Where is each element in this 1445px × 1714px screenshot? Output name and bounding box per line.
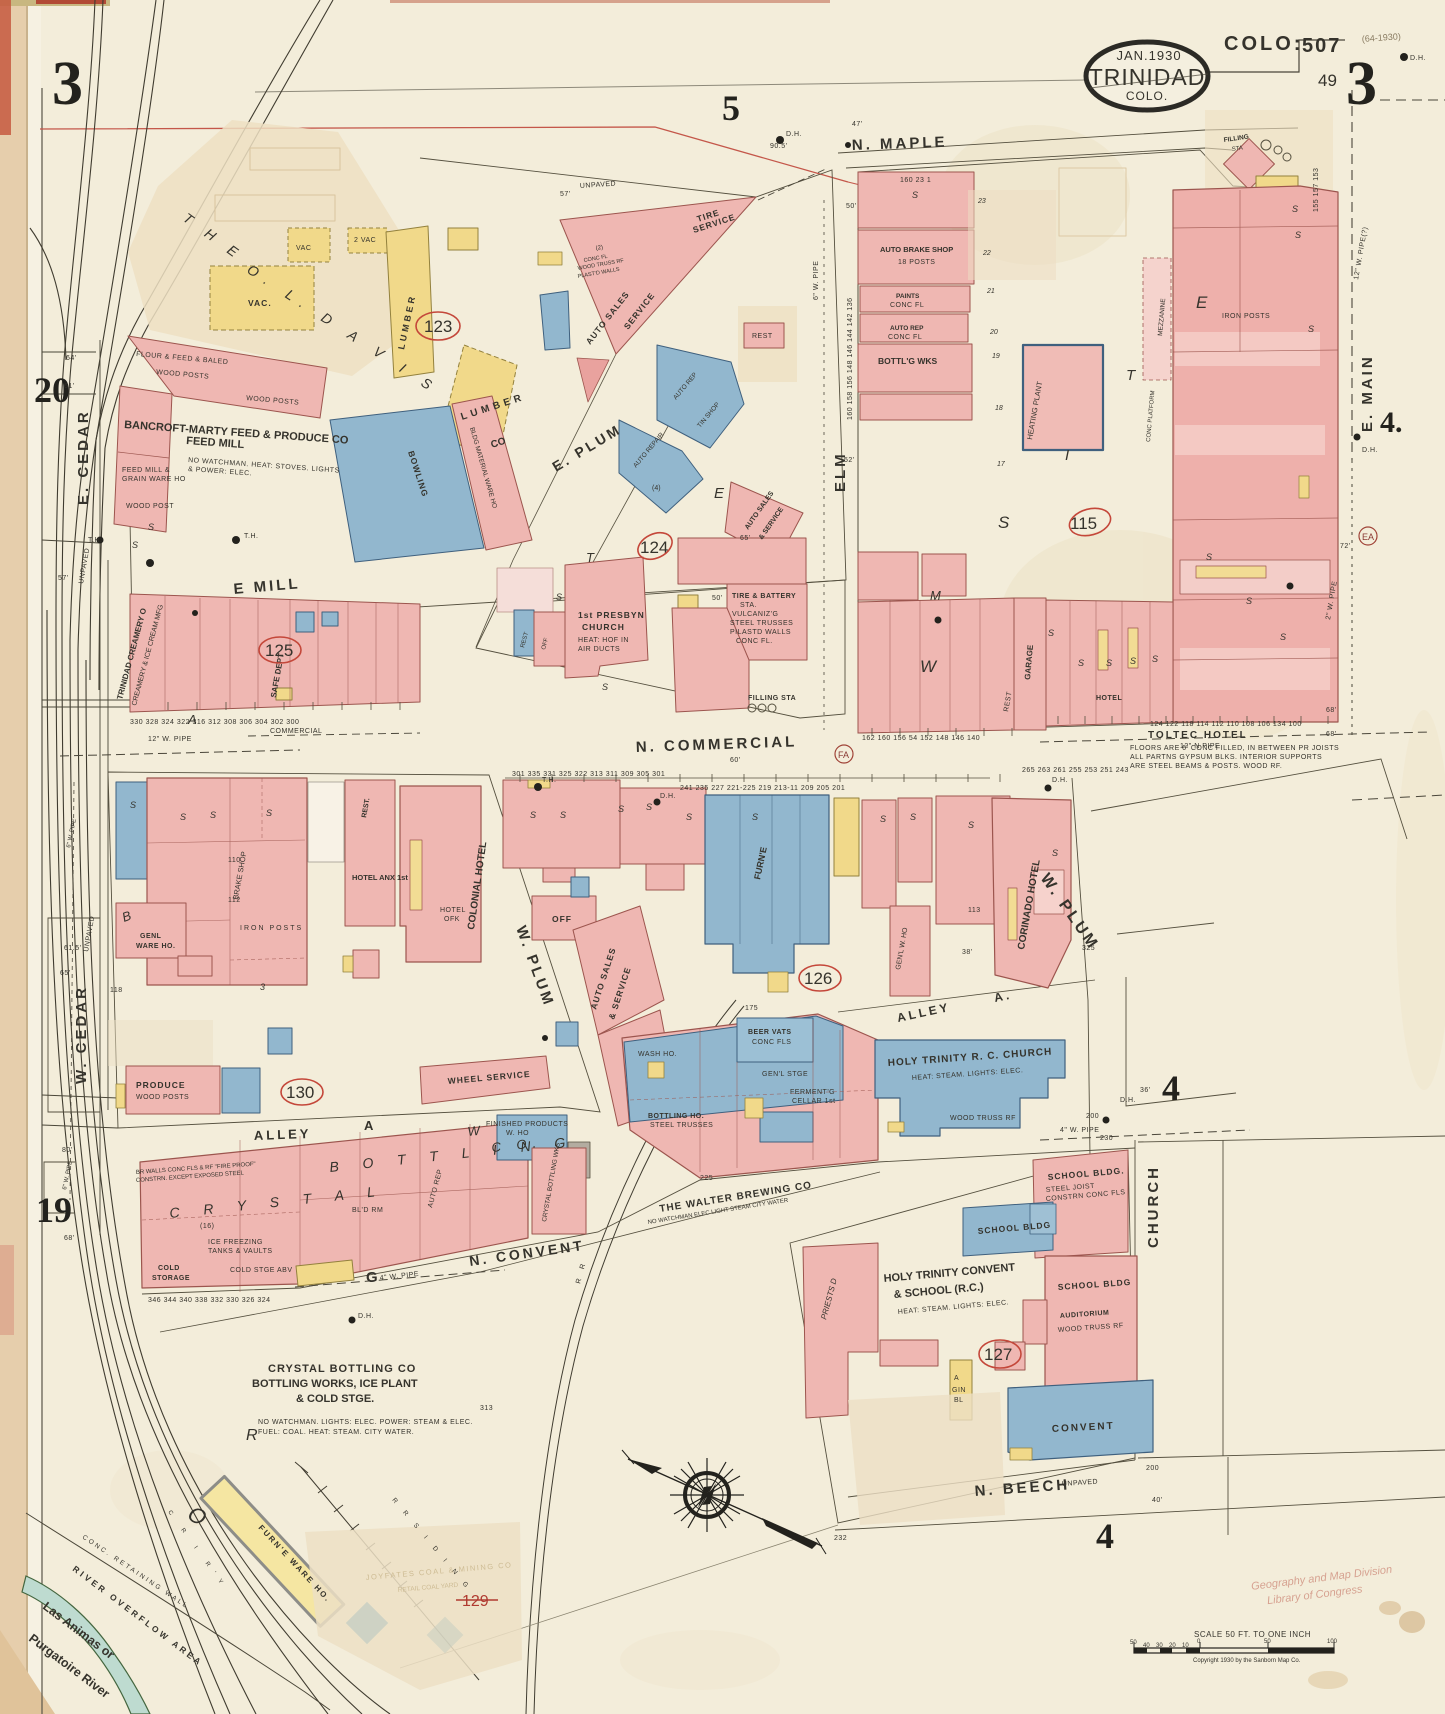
svg-text:18 POSTS: 18 POSTS — [898, 259, 935, 266]
svg-text:R: R — [246, 1427, 258, 1444]
svg-text:ALL PARTNS GYPSUM BLKS. INTERI: ALL PARTNS GYPSUM BLKS. INTERIOR SUPPORT… — [1130, 754, 1322, 761]
svg-text:36': 36' — [1140, 1087, 1151, 1094]
svg-text:126: 126 — [804, 969, 832, 988]
svg-text:G: G — [366, 1269, 381, 1286]
svg-text:T: T — [586, 550, 595, 565]
svg-text:D.H.: D.H. — [1052, 777, 1068, 784]
svg-text:225: 225 — [700, 1175, 713, 1182]
svg-text:S: S — [560, 810, 566, 820]
svg-text:CELLAR 1st: CELLAR 1st — [792, 1098, 836, 1105]
svg-text:S: S — [968, 820, 974, 830]
svg-text:S: S — [1246, 596, 1252, 606]
svg-text:(16): (16) — [200, 1223, 214, 1230]
svg-text:313: 313 — [480, 1405, 493, 1412]
svg-text:WOOD TRUSS RF: WOOD TRUSS RF — [950, 1115, 1016, 1122]
svg-text:12" N PIPE: 12" N PIPE — [1180, 743, 1220, 750]
svg-text:40': 40' — [1152, 1497, 1163, 1504]
svg-text:68': 68' — [1326, 731, 1337, 738]
svg-text:60': 60' — [730, 757, 741, 764]
svg-text:S: S — [1078, 658, 1084, 668]
svg-text:S: S — [530, 810, 536, 820]
svg-text:OFK: OFK — [444, 916, 460, 923]
svg-text:65': 65' — [740, 535, 751, 542]
svg-text:3: 3 — [260, 982, 265, 992]
svg-text:175: 175 — [745, 1005, 758, 1012]
svg-text:325: 325 — [1082, 945, 1095, 952]
svg-text:330 328 324 322 316 312 308 30: 330 328 324 322 316 312 308 306 304 302 … — [130, 719, 299, 726]
svg-text:127: 127 — [984, 1345, 1012, 1364]
svg-text:VAC.: VAC. — [248, 298, 272, 308]
svg-text:ALLEY: ALLEY — [254, 1126, 312, 1143]
svg-text:BOTTL'G WKS: BOTTL'G WKS — [878, 356, 937, 366]
svg-text:OFF: OFF — [552, 914, 572, 924]
svg-text:S: S — [180, 812, 186, 822]
svg-text:GENL: GENL — [140, 933, 162, 940]
svg-text:FERMENT'G: FERMENT'G — [790, 1089, 835, 1096]
svg-text:D.H.: D.H. — [1362, 447, 1378, 454]
svg-text:50': 50' — [846, 203, 857, 210]
svg-text:232: 232 — [834, 1535, 847, 1542]
svg-text:124 122 118 114 112 110 108 10: 124 122 118 114 112 110 108 106 134 100 — [1150, 721, 1302, 728]
svg-text:T.H.: T.H. — [542, 777, 556, 784]
svg-text:112: 112 — [228, 897, 241, 904]
svg-text:HOTEL: HOTEL — [1096, 695, 1122, 702]
svg-text:S: S — [130, 800, 136, 810]
svg-text:N. MAPLE: N. MAPLE — [852, 134, 948, 154]
svg-text:S: S — [1048, 628, 1054, 638]
svg-text:STORAGE: STORAGE — [152, 1275, 190, 1282]
svg-text:CONC FL.: CONC FL. — [736, 638, 773, 645]
svg-text:VULCANIZ'G: VULCANIZ'G — [732, 611, 778, 618]
svg-text:T.H.: T.H. — [244, 533, 258, 540]
svg-text:S: S — [1295, 230, 1301, 240]
svg-text:PAINTS: PAINTS — [896, 293, 920, 300]
svg-text:155 157 153: 155 157 153 — [1313, 168, 1320, 212]
svg-text:90.5': 90.5' — [770, 143, 787, 150]
svg-text:PILASTD WALLS: PILASTD WALLS — [730, 629, 791, 636]
svg-text:1st PRESBYN: 1st PRESBYN — [578, 610, 645, 620]
svg-text:(2): (2) — [595, 245, 603, 252]
svg-text:200: 200 — [1146, 1465, 1159, 1472]
svg-text:GIN: GIN — [952, 1387, 966, 1394]
svg-text:19: 19 — [992, 353, 1000, 360]
svg-text:38': 38' — [962, 949, 973, 956]
svg-text:20: 20 — [989, 329, 998, 336]
svg-text:TOLTEC HOTEL: TOLTEC HOTEL — [1148, 730, 1248, 741]
svg-text:23: 23 — [977, 198, 986, 205]
svg-text:IRON POSTS: IRON POSTS — [1222, 313, 1270, 320]
svg-text:200: 200 — [1086, 1113, 1099, 1120]
svg-text:E: E — [1196, 293, 1208, 312]
svg-text:17: 17 — [997, 461, 1006, 468]
svg-text:S: S — [602, 682, 608, 692]
svg-text:D.H.: D.H. — [1120, 1097, 1136, 1104]
svg-text:162 160 156 54 152 148 146 140: 162 160 156 54 152 148 146 140 — [862, 735, 980, 742]
svg-text:STA.: STA. — [740, 602, 757, 609]
svg-text:22: 22 — [982, 250, 991, 257]
svg-text:WASH HO.: WASH HO. — [638, 1051, 677, 1058]
svg-text:52': 52' — [844, 457, 855, 464]
svg-text:WOOD POSTS: WOOD POSTS — [136, 1094, 189, 1101]
svg-text:& COLD STGE.: & COLD STGE. — [296, 1393, 374, 1405]
svg-text:CRYSTAL BOTTLING CO: CRYSTAL BOTTLING CO — [268, 1363, 416, 1375]
svg-text:S: S — [1106, 658, 1112, 668]
svg-text:3: 3 — [52, 50, 83, 118]
svg-text:4: 4 — [1162, 1068, 1180, 1108]
svg-text:68': 68' — [1326, 707, 1337, 714]
svg-text:BL: BL — [954, 1397, 964, 1404]
svg-text:GRAIN WARE HO: GRAIN WARE HO — [122, 476, 186, 483]
svg-text:72': 72' — [1340, 543, 1351, 550]
svg-text:T.H.: T.H. — [88, 537, 102, 544]
svg-text:JAN.1930: JAN.1930 — [1116, 48, 1181, 63]
svg-text:18: 18 — [995, 405, 1003, 412]
svg-text:STEEL TRUSSES: STEEL TRUSSES — [730, 620, 793, 627]
svg-text:FA: FA — [838, 750, 849, 760]
svg-text:S: S — [686, 812, 692, 822]
svg-text:57': 57' — [58, 575, 69, 582]
svg-text:FLOORS ARE 6' CONC FILLED, IN: FLOORS ARE 6' CONC FILLED, IN BETWEEN PR… — [1130, 745, 1339, 752]
svg-text:ICE FREEZING: ICE FREEZING — [208, 1239, 263, 1246]
svg-text:HOTEL: HOTEL — [440, 907, 466, 914]
svg-text:FILLING STA: FILLING STA — [748, 695, 796, 702]
svg-text:HOTEL ANX 1st: HOTEL ANX 1st — [352, 873, 408, 882]
svg-text:160 23 1: 160 23 1 — [900, 177, 931, 184]
svg-text:BL'D RM: BL'D RM — [352, 1207, 383, 1214]
svg-text:507: 507 — [1302, 35, 1341, 57]
svg-text:CONC FL: CONC FL — [888, 334, 922, 341]
svg-text:129: 129 — [462, 1593, 489, 1610]
svg-text:D.H.: D.H. — [358, 1313, 374, 1320]
svg-text:110: 110 — [228, 857, 241, 864]
svg-text:5: 5 — [722, 88, 740, 128]
svg-text:4: 4 — [1096, 1516, 1114, 1556]
svg-text:19: 19 — [36, 1190, 72, 1230]
svg-text:S: S — [1308, 324, 1314, 334]
svg-text:COLO.: COLO. — [1126, 89, 1168, 103]
svg-text:S: S — [752, 812, 758, 822]
svg-text:S: S — [1292, 204, 1298, 214]
svg-text:NO WATCHMAN. LIGHTS: ELEC. POW: NO WATCHMAN. LIGHTS: ELEC. POWER: STEAM … — [258, 1419, 473, 1426]
svg-text:4.: 4. — [1380, 406, 1403, 439]
svg-text:EA: EA — [1362, 532, 1374, 542]
svg-text:S: S — [132, 540, 138, 550]
svg-text:64': 64' — [66, 355, 77, 362]
svg-text:2 VAC: 2 VAC — [354, 237, 376, 244]
svg-text:130: 130 — [286, 1083, 314, 1102]
svg-text:61': 61' — [64, 383, 75, 390]
svg-text:E: E — [714, 485, 725, 502]
svg-text:BOTTLING HO.: BOTTLING HO. — [648, 1113, 704, 1120]
svg-text:A: A — [187, 712, 197, 727]
svg-text:GEN'L STGE: GEN'L STGE — [762, 1071, 808, 1078]
svg-text:WARE HO.: WARE HO. — [136, 943, 175, 950]
svg-text:S: S — [912, 190, 918, 200]
svg-text:47': 47' — [852, 121, 863, 128]
svg-text:20: 20 — [34, 370, 70, 410]
svg-text:IRON POSTS: IRON POSTS — [240, 925, 303, 932]
svg-text:W. HO: W. HO — [506, 1130, 529, 1137]
svg-text:COLO:: COLO: — [1224, 33, 1303, 55]
svg-text:REST: REST — [752, 333, 773, 340]
svg-text:113: 113 — [968, 907, 981, 914]
svg-text:57': 57' — [560, 191, 571, 198]
svg-text:125: 125 — [265, 641, 293, 660]
svg-text:FEED MILL &: FEED MILL & — [122, 467, 170, 474]
svg-text:346 344 340 338 332 330 326 32: 346 344 340 338 332 330 326 324 — [148, 1297, 271, 1304]
svg-text:E. MAIN: E. MAIN — [1359, 354, 1376, 432]
svg-text:6" W. PIPE: 6" W. PIPE — [813, 261, 820, 300]
svg-text:S: S — [998, 513, 1010, 532]
svg-text:S: S — [618, 804, 624, 814]
svg-text:D.H.: D.H. — [786, 131, 802, 138]
svg-text:FINISHED PRODUCTS: FINISHED PRODUCTS — [486, 1121, 568, 1128]
svg-text:61.5': 61.5' — [64, 945, 81, 952]
svg-text:S: S — [880, 814, 886, 824]
svg-text:118: 118 — [110, 987, 123, 994]
svg-text:301 335 331 325 322 313 311 30: 301 335 331 325 322 313 311 309 305 301 — [512, 771, 665, 778]
svg-text:HEAT: HOF IN: HEAT: HOF IN — [578, 637, 629, 644]
svg-text:TANKS & VAULTS: TANKS & VAULTS — [208, 1248, 273, 1255]
svg-text:123: 123 — [424, 317, 452, 336]
svg-text:S: S — [1130, 656, 1136, 666]
svg-text:WOOD POST: WOOD POST — [126, 503, 174, 510]
svg-text:W: W — [920, 657, 938, 676]
svg-text:S: S — [910, 812, 916, 822]
svg-text:AUTO BRAKE SHOP: AUTO BRAKE SHOP — [880, 245, 953, 254]
svg-text:S: S — [148, 522, 154, 532]
svg-text:S: S — [266, 808, 272, 818]
svg-text:COLD STGE ABV: COLD STGE ABV — [230, 1267, 293, 1274]
svg-text:FUEL: COAL. HEAT: STEAM. CITY: FUEL: COAL. HEAT: STEAM. CITY WATER. — [258, 1429, 414, 1436]
svg-text:CHURCH: CHURCH — [582, 622, 625, 632]
svg-text:A: A — [364, 1118, 376, 1133]
svg-text:PRODUCE: PRODUCE — [136, 1080, 186, 1090]
svg-text:S: S — [1052, 848, 1058, 858]
svg-text:S: S — [1280, 632, 1286, 642]
svg-text:50': 50' — [712, 595, 723, 602]
svg-text:STEEL TRUSSES: STEEL TRUSSES — [650, 1122, 713, 1129]
svg-text:49: 49 — [1318, 71, 1337, 90]
svg-text:D.H.: D.H. — [1410, 55, 1426, 62]
svg-text:230: 230 — [1100, 1135, 1113, 1142]
svg-text:S: S — [1206, 552, 1212, 562]
svg-text:S: S — [210, 810, 216, 820]
svg-text:68': 68' — [64, 1235, 75, 1242]
svg-text:COLD: COLD — [158, 1265, 180, 1272]
svg-text:265 263 261 255 253 251 243: 265 263 261 255 253 251 243 — [1022, 767, 1129, 774]
svg-text:A: A — [954, 1375, 959, 1382]
svg-text:12" W. PIPE: 12" W. PIPE — [148, 736, 192, 743]
svg-text:80': 80' — [62, 1147, 73, 1154]
svg-text:CONC FL: CONC FL — [890, 302, 924, 309]
svg-text:100: 100 — [1327, 1639, 1338, 1645]
svg-text:E. CEDAR: E. CEDAR — [75, 409, 92, 505]
svg-text:S: S — [1152, 654, 1158, 664]
svg-text:3: 3 — [1346, 50, 1377, 118]
svg-text:BEER VATS: BEER VATS — [748, 1029, 792, 1036]
svg-text:S: S — [646, 802, 652, 812]
svg-text:TIRE & BATTERY: TIRE & BATTERY — [732, 593, 796, 600]
svg-text:VAC: VAC — [296, 245, 311, 252]
svg-text:AUTO REP: AUTO REP — [890, 325, 924, 332]
svg-text:SCALE 50 FT. TO ONE INCH: SCALE 50 FT. TO ONE INCH — [1194, 1630, 1311, 1639]
svg-text:CONC FLS: CONC FLS — [752, 1039, 791, 1046]
svg-text:AIR DUCTS: AIR DUCTS — [578, 646, 620, 653]
svg-text:COMMERCIAL: COMMERCIAL — [270, 728, 322, 735]
svg-text:ARE STEEL BEAMS & POSTS. WOOD: ARE STEEL BEAMS & POSTS. WOOD RF. — [1130, 763, 1282, 770]
svg-text:CHURCH: CHURCH — [1145, 1165, 1162, 1248]
svg-text:S: S — [556, 592, 562, 602]
svg-text:160 158 156 148 146 144 142 13: 160 158 156 148 146 144 142 136 — [847, 297, 854, 420]
svg-text:BOTTLING WORKS, ICE PLANT: BOTTLING WORKS, ICE PLANT — [252, 1378, 418, 1390]
svg-text:21: 21 — [986, 288, 995, 295]
svg-text:65': 65' — [60, 970, 71, 977]
svg-text:Copyright 1930 by the Sanborn: Copyright 1930 by the Sanborn Map Co. — [1193, 1658, 1301, 1664]
svg-text:I: I — [1065, 447, 1069, 464]
svg-text:M: M — [930, 588, 941, 603]
svg-text:D.H.: D.H. — [660, 793, 676, 800]
svg-text:241 235 227 221-225 219 213-11: 241 235 227 221-225 219 213-11 209 205 2… — [680, 785, 845, 792]
svg-text:(4): (4) — [652, 485, 661, 492]
svg-text:4" W. PIPE: 4" W. PIPE — [1060, 1127, 1099, 1134]
svg-text:W. CEDAR: W. CEDAR — [73, 985, 90, 1084]
